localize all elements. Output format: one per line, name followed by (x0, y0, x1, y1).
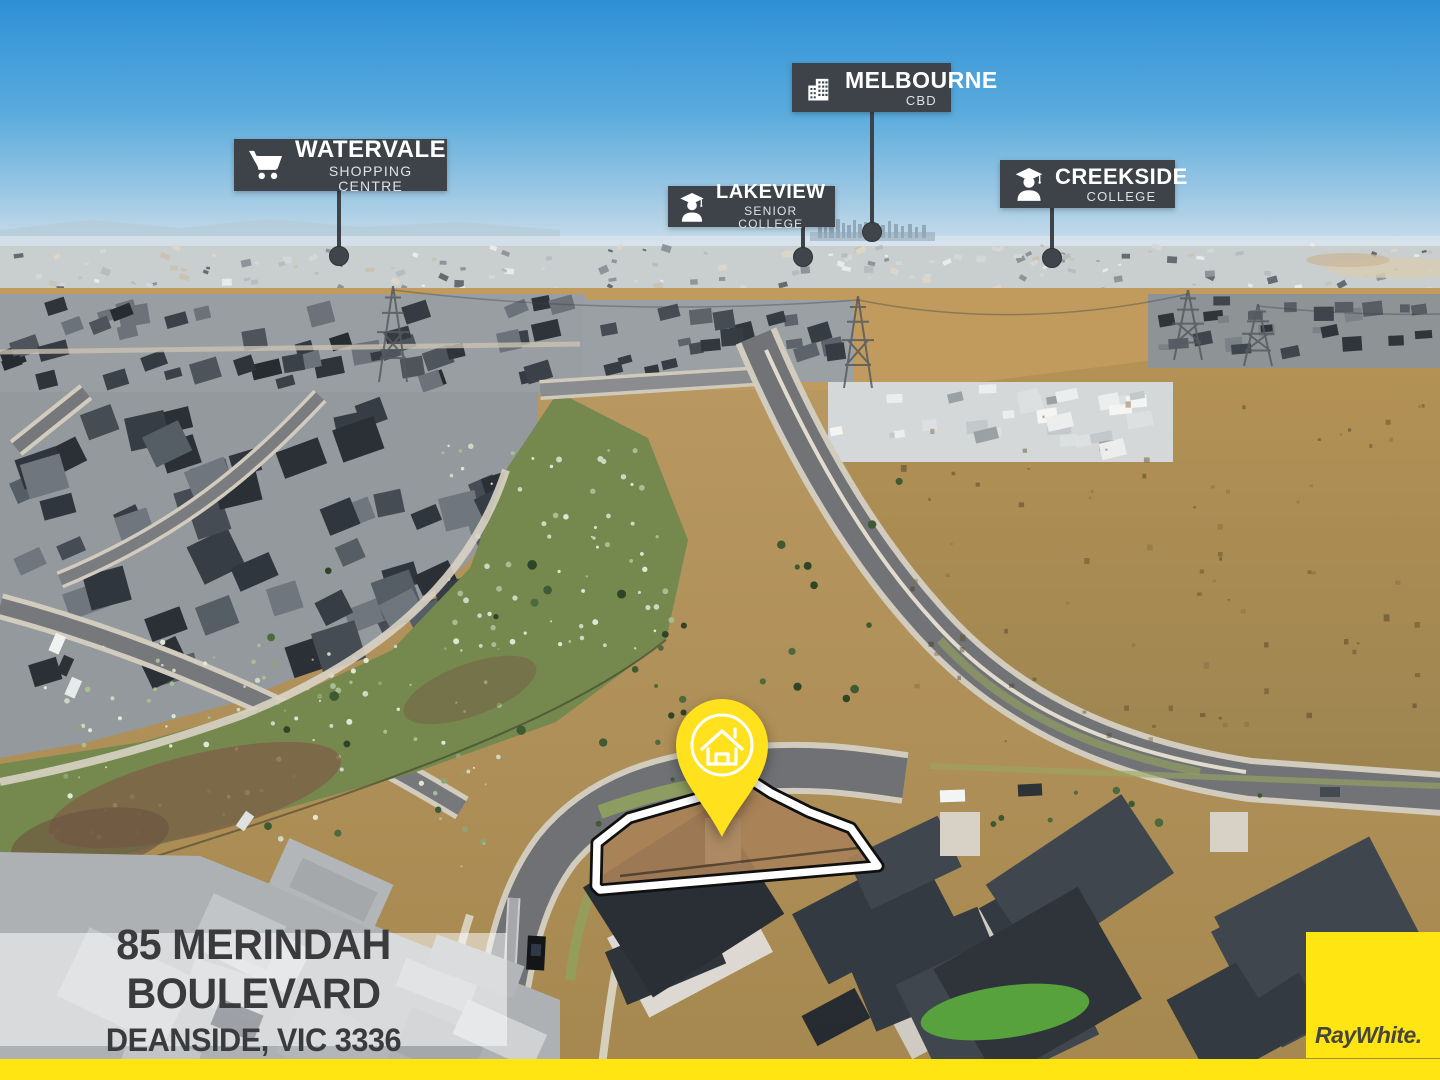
address-line1: 85 MERINDAH BOULEVARD (10, 921, 497, 1019)
brand-bar (0, 1059, 1440, 1080)
map-dot-watervale (329, 246, 349, 266)
map-dot-melbourne (862, 222, 882, 242)
graduate-icon (678, 191, 706, 223)
map-dot-lakeview (793, 247, 813, 267)
raywhite-logo: RayWhite. (1306, 932, 1440, 1058)
callout-subtitle: COLLEGE (1055, 190, 1188, 204)
callout-lakeview-senior-college: LAKEVIEW SENIOR COLLEGE (668, 186, 835, 227)
aerial-photo-background (0, 0, 1440, 1080)
raywhite-logo-text: RayWhite. (1315, 1022, 1422, 1049)
map-dot-creekside (1042, 248, 1062, 268)
building-icon (805, 73, 835, 103)
shopping-cart-icon (247, 148, 285, 182)
graduate-icon (1013, 166, 1045, 202)
callout-creekside-college: CREEKSIDE COLLEGE (1000, 160, 1175, 208)
property-pin (662, 687, 782, 843)
callout-subtitle: SHOPPING CENTRE (295, 164, 446, 193)
callout-title: MELBOURNE (845, 68, 998, 92)
address-line2: DEANSIDE, VIC 3336 (10, 1022, 497, 1059)
callout-melbourne-cbd: MELBOURNE CBD (792, 63, 951, 112)
callout-watervale-shopping-centre: WATERVALE SHOPPING CENTRE (234, 139, 447, 191)
callout-title: CREEKSIDE (1055, 165, 1188, 188)
leader-line-melbourne (870, 112, 874, 233)
aerial-photo: MELBOURNE CBD WATERVALE SHOPPING CENTRE … (0, 0, 1440, 1080)
address-overlay: 85 MERINDAH BOULEVARD DEANSIDE, VIC 3336 (0, 933, 507, 1046)
callout-subtitle: SENIOR COLLEGE (716, 205, 826, 230)
callout-title: WATERVALE (295, 137, 446, 162)
callout-subtitle: CBD (845, 94, 998, 108)
callout-title: LAKEVIEW (716, 182, 826, 203)
